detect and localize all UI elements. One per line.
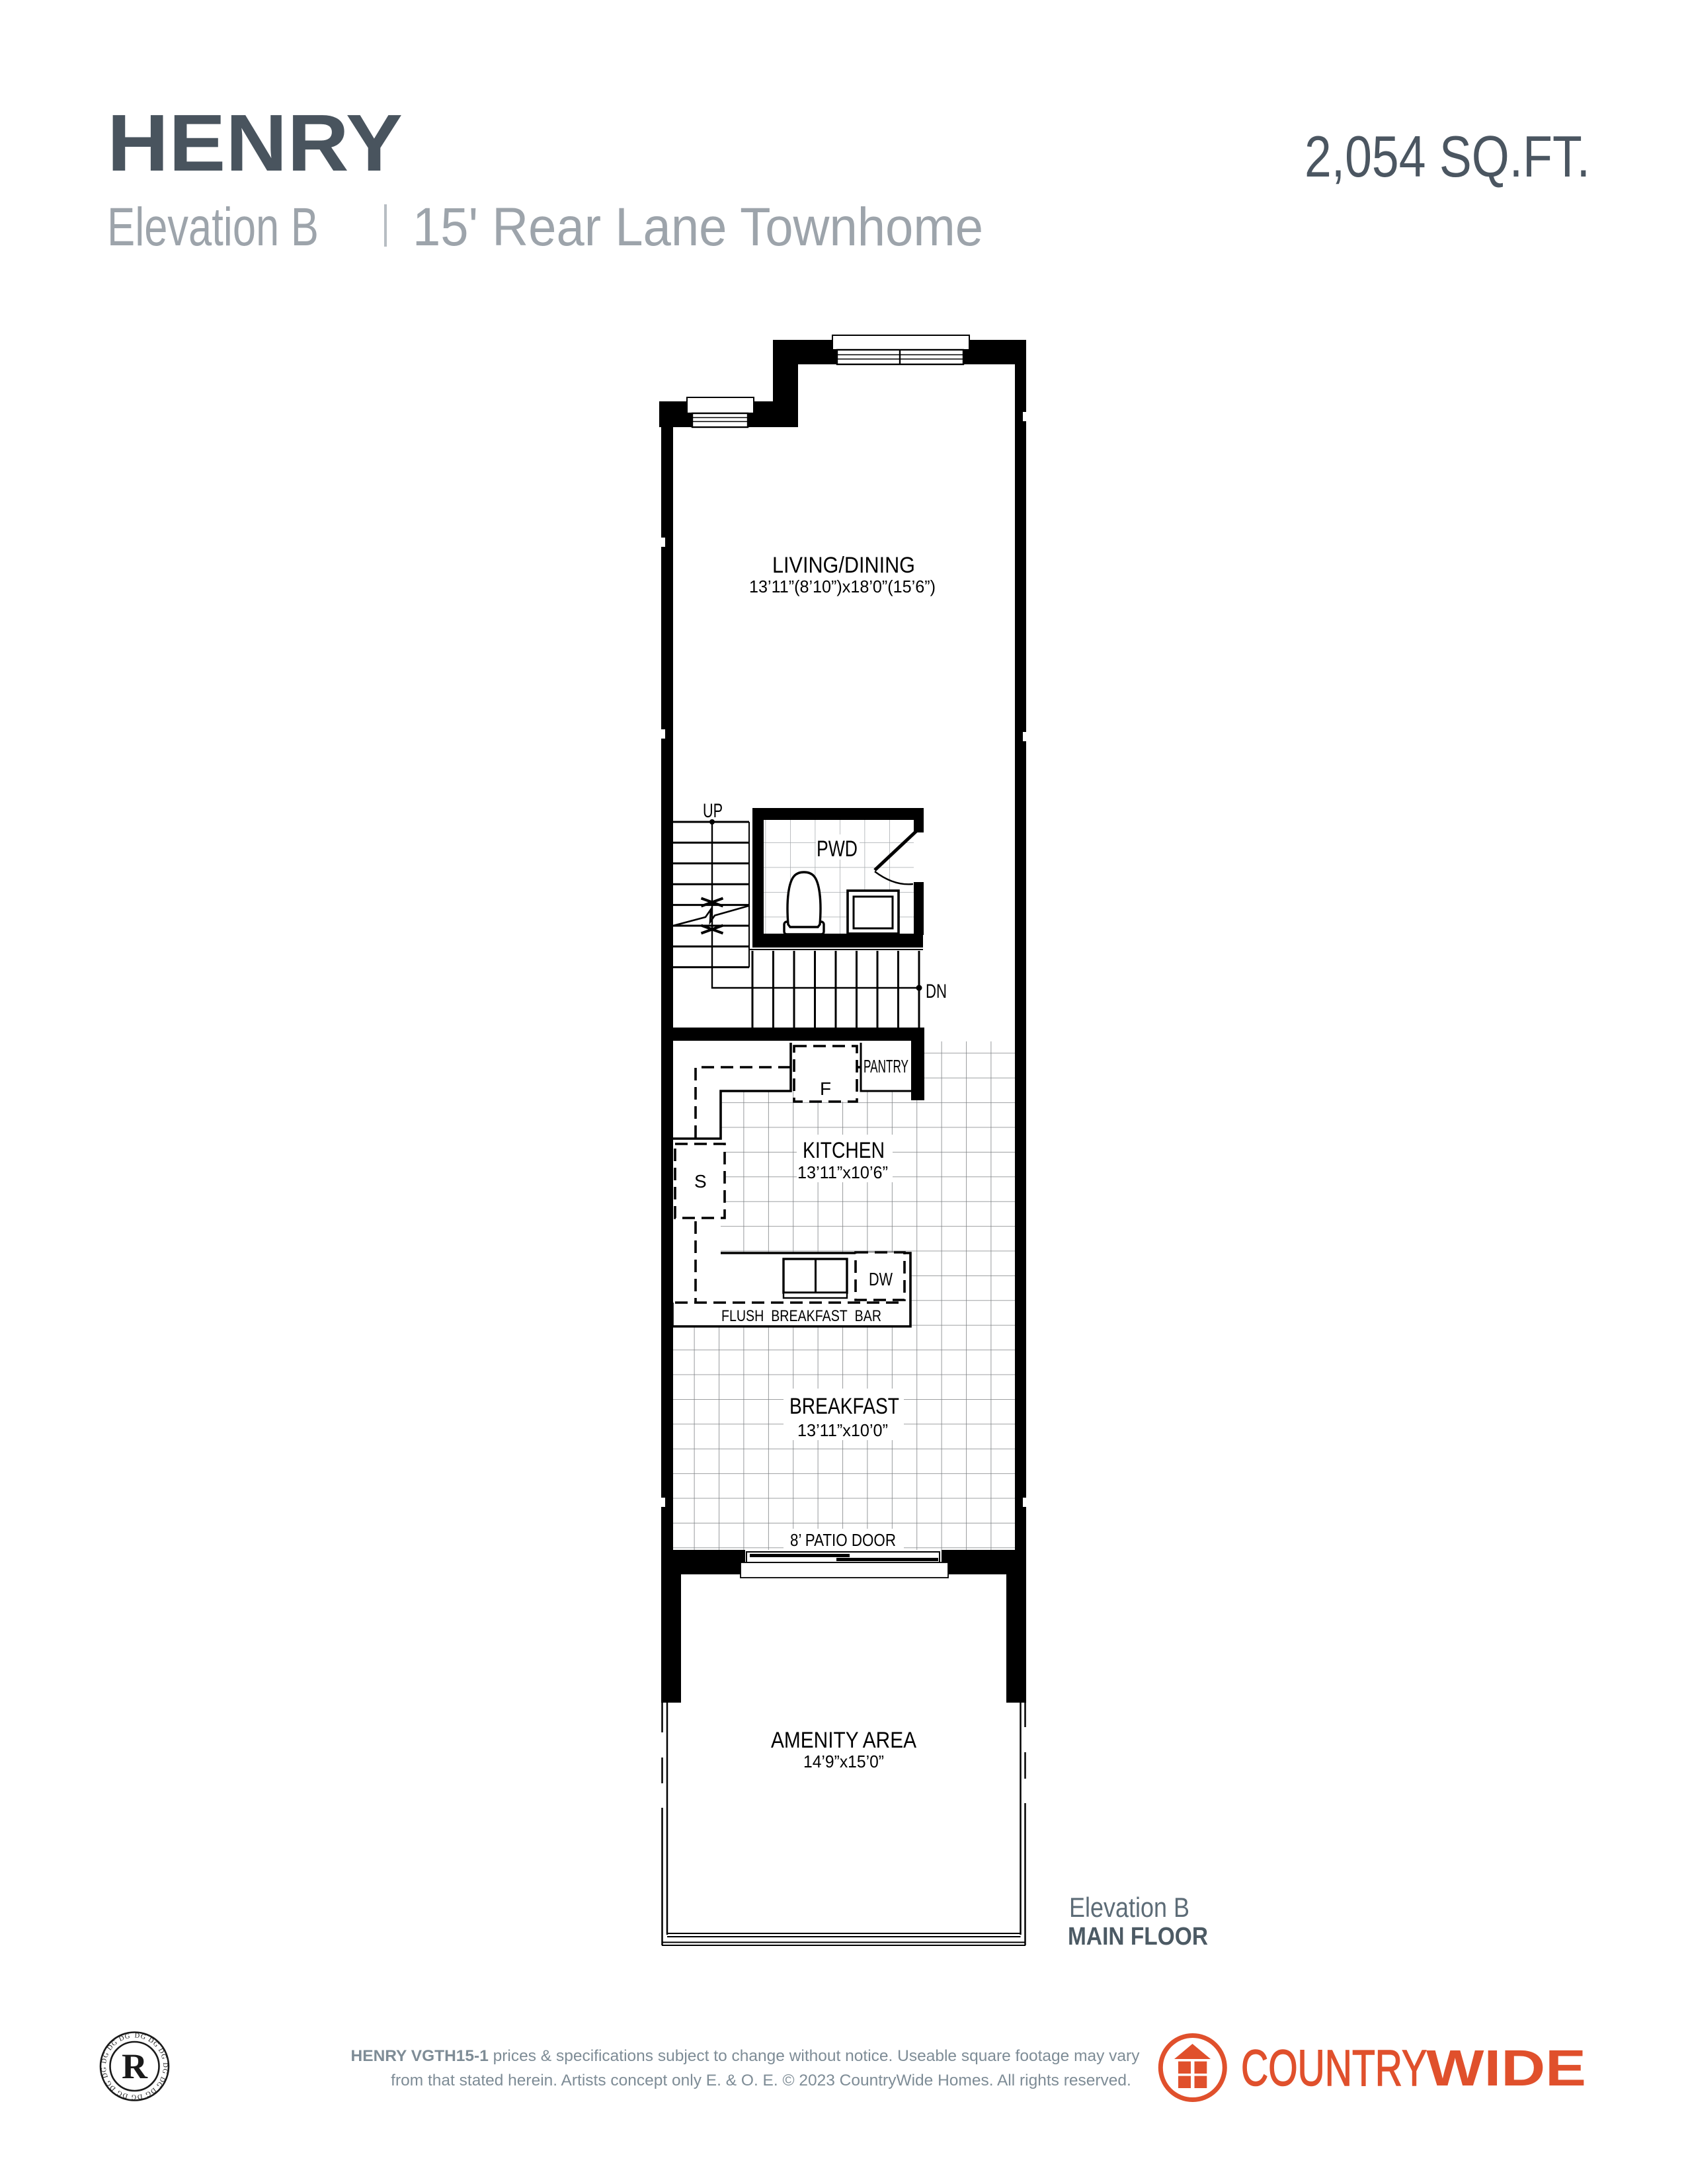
svg-text:F: F <box>820 1078 831 1099</box>
svg-text:AMENITY AREA: AMENITY AREA <box>771 1728 916 1753</box>
svg-text:8’ PATIO DOOR: 8’ PATIO DOOR <box>790 1530 896 1550</box>
svg-text:BREAKFAST: BREAKFAST <box>789 1394 899 1419</box>
svg-text:MAIN FLOOR: MAIN FLOOR <box>1068 1923 1208 1951</box>
svg-text:Elevation B: Elevation B <box>107 197 319 257</box>
svg-text:DG DG DG DG DG DG DG DG DG DG: DG DG DG DG DG DG DG DG DG DG DG DG DG D… <box>0 0 169 2101</box>
svg-text:HENRY VGTH15-1 prices & specif: HENRY VGTH15-1 prices & specifications s… <box>351 2047 1141 2065</box>
svg-text:13’11”x10’6”: 13’11”x10’6” <box>797 1162 888 1182</box>
svg-text:13’11”x10’0”: 13’11”x10’0” <box>797 1420 888 1440</box>
svg-text:HENRY: HENRY <box>107 98 403 188</box>
svg-text:R: R <box>122 2046 148 2086</box>
svg-text:DN: DN <box>926 981 947 1002</box>
svg-text:PWD: PWD <box>817 836 858 862</box>
svg-text:LIVING/DINING: LIVING/DINING <box>772 553 915 578</box>
svg-text:WIDE: WIDE <box>1426 2040 1586 2097</box>
svg-text:2,054 SQ.FT.: 2,054 SQ.FT. <box>1305 124 1590 189</box>
svg-text:14’9”x15’0”: 14’9”x15’0” <box>803 1752 884 1771</box>
svg-text:S: S <box>694 1171 707 1192</box>
svg-text:DW: DW <box>869 1269 893 1289</box>
svg-text:UP: UP <box>703 800 723 822</box>
svg-text:13’11”(8’10”)x18’0”(15’6”): 13’11”(8’10”)x18’0”(15’6”) <box>749 577 936 596</box>
svg-text:from that stated herein. Artis: from that stated herein. Artists concept… <box>391 2072 1131 2089</box>
svg-text:15' Rear Lane Townhome: 15' Rear Lane Townhome <box>413 197 983 257</box>
svg-text:PANTRY: PANTRY <box>864 1056 908 1076</box>
svg-text:KITCHEN: KITCHEN <box>803 1138 885 1163</box>
svg-text:FLUSH BREAKFAST BAR: FLUSH BREAKFAST BAR <box>721 1307 881 1325</box>
svg-text:Elevation B: Elevation B <box>1069 1892 1189 1923</box>
svg-text:COUNTRY: COUNTRY <box>1241 2040 1427 2097</box>
